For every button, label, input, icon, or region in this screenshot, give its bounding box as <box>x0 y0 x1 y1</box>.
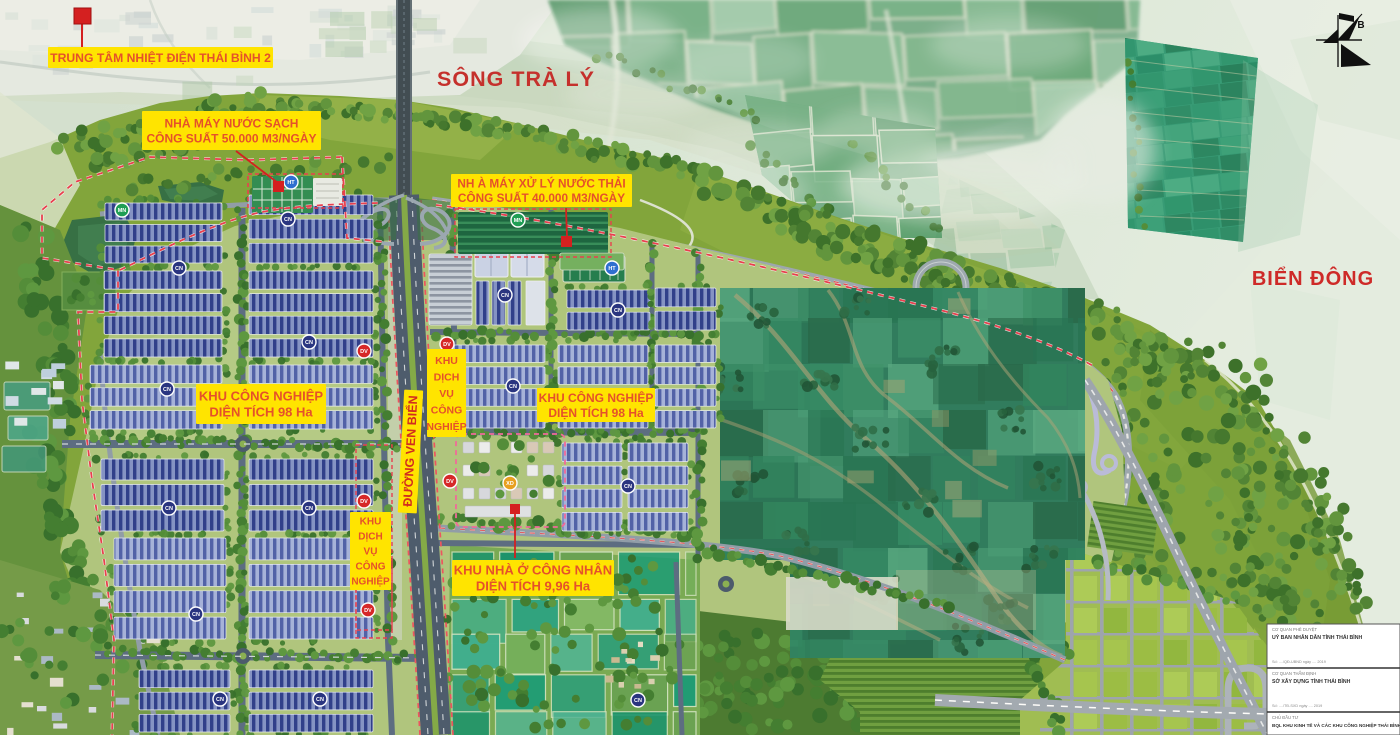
svg-text:NGHIỆP: NGHIỆP <box>426 420 466 433</box>
svg-text:DV: DV <box>364 608 372 614</box>
svg-text:SÔNG TRÀ LÝ: SÔNG TRÀ LÝ <box>437 66 595 91</box>
svg-text:MN: MN <box>514 218 523 224</box>
svg-text:CN: CN <box>624 484 632 490</box>
svg-text:DIỆN TÍCH 98 Ha: DIỆN TÍCH 98 Ha <box>548 405 644 420</box>
svg-text:MN: MN <box>118 208 127 214</box>
svg-text:BQL KHU KINH TẾ VÀ CÁC KHU CÔN: BQL KHU KINH TẾ VÀ CÁC KHU CÔNG NGHIỆP T… <box>1272 721 1400 728</box>
svg-text:CHỦ ĐẦU TƯ: CHỦ ĐẦU TƯ <box>1272 715 1299 720</box>
svg-text:DV: DV <box>443 342 451 348</box>
svg-text:KHU: KHU <box>435 355 458 367</box>
svg-text:CN: CN <box>614 308 622 314</box>
svg-text:DV: DV <box>446 479 454 485</box>
svg-text:CÔNG SUẤT 50.000 M3/NGÀY: CÔNG SUẤT 50.000 M3/NGÀY <box>146 130 316 145</box>
svg-text:CN: CN <box>216 697 224 703</box>
svg-text:CƠ QUAN PHÊ DUYỆT: CƠ QUAN PHÊ DUYỆT <box>1272 627 1317 632</box>
svg-text:TRUNG TÂM NHIỆT ĐIỆN THÁI BÌNH: TRUNG TÂM NHIỆT ĐIỆN THÁI BÌNH 2 <box>50 50 271 65</box>
svg-text:CN: CN <box>175 266 183 272</box>
svg-text:NHÀ MÁY NƯỚC SẠCH: NHÀ MÁY NƯỚC SẠCH <box>165 115 299 130</box>
svg-text:Số: ..../QĐ-UBND ngày .... 2: Số: ..../QĐ-UBND ngày .... 2019 <box>1272 660 1326 664</box>
svg-text:SỞ XÂY DỰNG TỈNH THÁI BÌNH: SỞ XÂY DỰNG TỈNH THÁI BÌNH <box>1272 677 1351 685</box>
svg-text:Số: ..../TĐ-SXD ngày .... 2: Số: ..../TĐ-SXD ngày .... 2019 <box>1272 704 1322 708</box>
svg-text:KHU: KHU <box>360 517 382 528</box>
svg-text:B: B <box>1357 20 1364 31</box>
svg-text:UỶ BAN NHÂN DÂN TỈNH THÁI BÌNH: UỶ BAN NHÂN DÂN TỈNH THÁI BÌNH <box>1272 633 1362 641</box>
svg-text:CƠ QUAN THẨM ĐỊNH: CƠ QUAN THẨM ĐỊNH <box>1272 671 1316 676</box>
svg-text:KHU CÔNG NGHIỆP: KHU CÔNG NGHIỆP <box>199 389 324 404</box>
svg-text:VỤ: VỤ <box>439 388 454 400</box>
svg-text:CN: CN <box>316 697 324 703</box>
svg-text:CN: CN <box>305 340 313 346</box>
svg-text:CN: CN <box>501 293 509 299</box>
svg-text:CÔNG: CÔNG <box>431 403 463 416</box>
svg-text:VỤ: VỤ <box>364 547 378 558</box>
svg-text:KHU NHÀ Ở CÔNG NHÂN: KHU NHÀ Ở CÔNG NHÂN <box>454 563 612 578</box>
svg-text:DỊCH: DỊCH <box>358 532 382 543</box>
svg-text:CN: CN <box>634 698 642 704</box>
svg-text:XD: XD <box>506 481 514 487</box>
svg-text:HT: HT <box>608 266 616 272</box>
svg-text:NGHIỆP: NGHIỆP <box>351 575 390 588</box>
svg-text:CN: CN <box>165 506 173 512</box>
svg-text:KHU CÔNG NGHIỆP: KHU CÔNG NGHIỆP <box>539 390 654 405</box>
svg-text:CN: CN <box>305 506 313 512</box>
svg-text:DỊCH: DỊCH <box>434 371 460 383</box>
svg-text:DIỆN TÍCH 98 Ha: DIỆN TÍCH 98 Ha <box>209 405 313 420</box>
svg-text:CÔNG: CÔNG <box>356 560 386 573</box>
svg-text:BIỂN ĐÔNG: BIỂN ĐÔNG <box>1252 266 1374 290</box>
svg-text:CN: CN <box>192 612 200 618</box>
svg-text:DV: DV <box>360 499 368 505</box>
svg-text:DV: DV <box>360 349 368 355</box>
svg-text:CÔNG SUẤT 40.000 M3/NGÀY: CÔNG SUẤT 40.000 M3/NGÀY <box>458 191 625 205</box>
svg-text:CN: CN <box>163 387 171 393</box>
svg-text:CN: CN <box>284 217 292 223</box>
svg-text:CN: CN <box>509 384 517 390</box>
svg-text:NH À MÁY XỬ LÝ NƯỚC THẢI: NH À MÁY XỬ LÝ NƯỚC THẢI <box>457 176 625 190</box>
svg-text:HT: HT <box>287 180 295 186</box>
svg-text:DIỆN TÍCH 9,96 Ha: DIỆN TÍCH 9,96 Ha <box>476 579 591 594</box>
